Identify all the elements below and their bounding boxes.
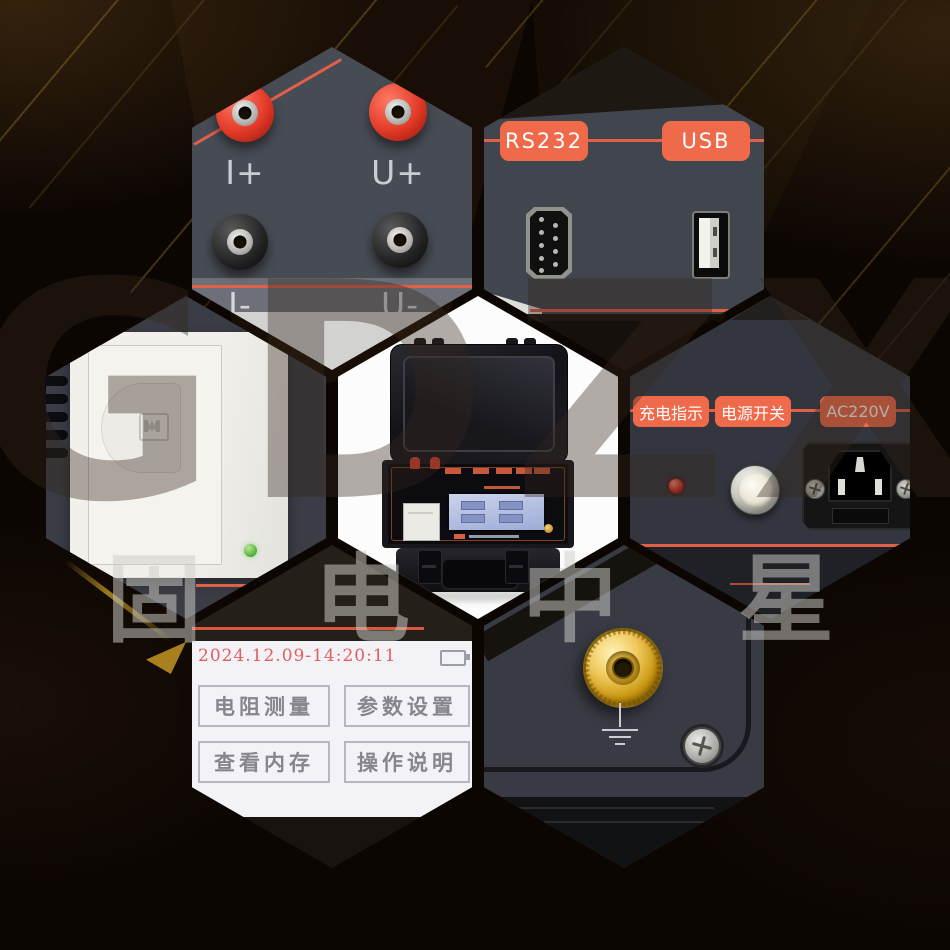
usb-contact: [713, 248, 717, 257]
db9-pin: [539, 217, 544, 222]
menu-button-parameter-settings: 参数设置: [344, 685, 470, 727]
ground-bar-long: [602, 729, 638, 731]
case-lid-inner: [403, 356, 555, 452]
device-orange-label: [473, 468, 489, 474]
product-feature-collage: I+ U+ I- U- RS232 USB: [0, 0, 950, 950]
vent-slot: [46, 376, 68, 386]
db9-serial-port-icon: [526, 207, 572, 279]
device-orange-label: [496, 468, 512, 474]
device-brand-logo: [454, 534, 465, 539]
ac-line-pin: [838, 479, 845, 495]
panel-screw-icon: [683, 727, 721, 765]
binding-post-black-i-minus: [212, 214, 268, 270]
db9-pin: [539, 230, 544, 235]
db9-inset: [530, 211, 568, 275]
ground-post-hole: [614, 659, 632, 677]
db9-pin: [539, 256, 544, 261]
printer-status-led-icon: [244, 544, 257, 557]
device-screen-button: [461, 514, 485, 523]
ac220v-text: AC220V: [826, 402, 889, 421]
device-screen-button: [461, 501, 485, 510]
power-push-button-icon: [730, 465, 780, 515]
device-printer: [403, 503, 440, 541]
device-screen-button: [499, 501, 523, 510]
usb-contact: [713, 227, 717, 236]
printer-module: [70, 332, 288, 578]
battery-icon: [440, 650, 466, 666]
usb-a-port-icon: [692, 211, 730, 279]
lcd-screen: 2024.12.09-14:20:11 电阻测量 参数设置 查看内存 操作说明: [192, 641, 472, 817]
case-lid-open: [390, 344, 568, 464]
printer-paper-door: [88, 345, 222, 565]
usb-label-text: USB: [681, 129, 730, 153]
usb-label: USB: [662, 121, 750, 161]
fuse-drawer: [832, 508, 889, 524]
terminal-label-u-plus: U+: [356, 153, 440, 192]
rs232-label: RS232: [500, 121, 588, 161]
binding-post-black-u-minus: [372, 212, 428, 268]
ac-earth-pin: [855, 457, 865, 472]
charge-indicator-label: 充电指示: [633, 396, 709, 427]
menu-button-resistance-measure: 电阻测量: [198, 685, 330, 727]
db9-pin: [553, 249, 558, 254]
usb-metal-shell: [699, 218, 719, 268]
device-lcd-screen: [447, 492, 546, 532]
accent-line: [192, 627, 424, 630]
device-red-post: [430, 457, 440, 469]
vent-slot: [46, 394, 68, 404]
inlet-screw-icon: [805, 479, 825, 499]
db9-pin: [553, 236, 558, 241]
device-model-text: [484, 486, 520, 489]
case-latch: [418, 550, 442, 584]
ground-bar-short: [615, 743, 625, 745]
rs232-label-text: RS232: [505, 129, 583, 153]
db9-pin: [539, 268, 544, 273]
device-orange-label: [445, 468, 461, 474]
ac-power-inlet-icon: [802, 442, 910, 530]
case-latch: [505, 550, 529, 584]
db9-pin: [553, 262, 558, 267]
accent-line: [730, 583, 810, 585]
charge-indicator-text: 充电指示: [639, 400, 703, 424]
db9-pin: [539, 243, 544, 248]
power-switch-text: 电源开关: [721, 400, 785, 424]
ac-neutral-pin: [875, 479, 882, 495]
device-orange-label: [534, 468, 550, 474]
case-ridge: [514, 807, 714, 809]
emblem-glyph: [144, 418, 160, 432]
power-switch-label: 电源开关: [715, 396, 791, 427]
charge-indicator-led-icon: [669, 479, 683, 493]
menu-button-operation-guide: 操作说明: [344, 741, 470, 783]
ac-socket: [828, 450, 892, 502]
vent-slot: [46, 448, 68, 458]
ac220v-label: AC220V: [820, 396, 896, 427]
power-button-cap: [737, 472, 773, 508]
db9-pin: [553, 223, 558, 228]
device-orange-label: [516, 468, 532, 474]
vent-slot: [46, 412, 68, 422]
vent-slot: [46, 430, 68, 440]
menu-button-view-memory: 查看内存: [198, 741, 330, 783]
device-screen-button: [499, 514, 523, 523]
earth-ground-symbol-icon: [619, 703, 621, 727]
ground-binding-post-icon: [583, 628, 663, 708]
device-ground-terminal: [544, 524, 553, 533]
device-company-text: [469, 535, 519, 538]
usb-tongue: [699, 218, 710, 268]
terminal-label-i-plus: I+: [203, 153, 287, 192]
inlet-screw-icon: [896, 479, 910, 499]
device-red-post: [410, 457, 420, 469]
ground-bar-mid: [609, 736, 631, 738]
screen-datetime: 2024.12.09-14:20:11: [198, 646, 396, 666]
printer-brand-emblem-icon: [139, 413, 169, 441]
